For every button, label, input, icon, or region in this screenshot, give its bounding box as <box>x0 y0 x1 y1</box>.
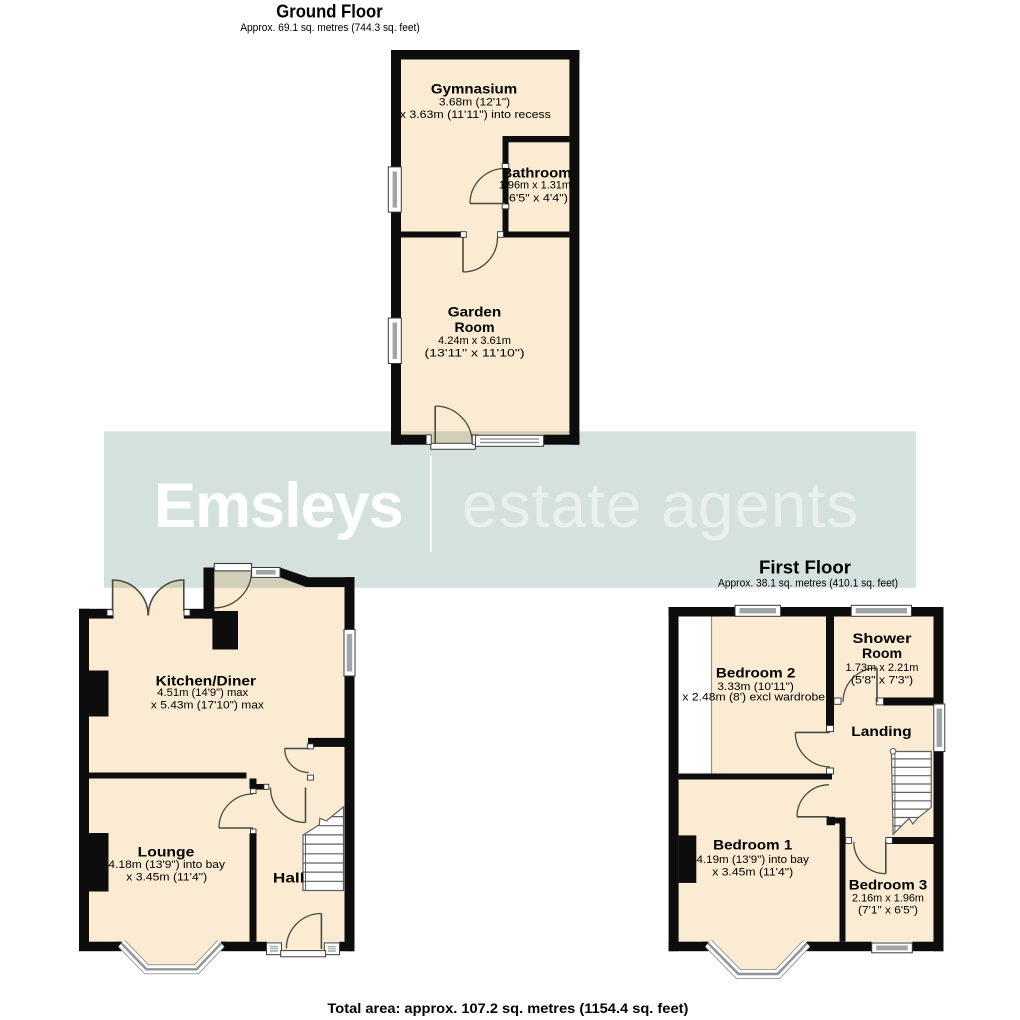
svg-text:x 3.63m (11'11") into recess: x 3.63m (11'11") into recess <box>400 109 552 121</box>
svg-text:4.19m (13'9") into bay: 4.19m (13'9") into bay <box>697 854 810 866</box>
svg-text:x 5.43m (17'10") max: x 5.43m (17'10") max <box>151 699 265 711</box>
svg-text:First Floor: First Floor <box>759 558 851 578</box>
svg-text:x 3.45m (11'4"): x 3.45m (11'4") <box>126 872 207 884</box>
svg-text:1.73m x 2.21m: 1.73m x 2.21m <box>846 662 919 674</box>
svg-text:x 3.45m (11'4"): x 3.45m (11'4") <box>712 866 793 878</box>
svg-text:(13'11" x 11'10"): (13'11" x 11'10") <box>425 348 525 360</box>
svg-text:Approx. 69.1 sq. metres (744.3: Approx. 69.1 sq. metres (744.3 sq. feet) <box>240 22 420 34</box>
svg-text:Shower: Shower <box>853 630 913 646</box>
svg-text:2.16m x 1.96m: 2.16m x 1.96m <box>852 893 924 905</box>
svg-text:Room: Room <box>455 319 495 335</box>
svg-text:estate agents: estate agents <box>462 469 859 541</box>
svg-text:Garden: Garden <box>448 304 502 320</box>
svg-text:4.18m (13'9") into bay: 4.18m (13'9") into bay <box>108 859 225 871</box>
svg-text:(5'8" x 7'3"): (5'8" x 7'3") <box>851 674 913 686</box>
svg-text:Kitchen/Diner: Kitchen/Diner <box>156 672 257 688</box>
svg-text:Ground Floor: Ground Floor <box>276 2 382 22</box>
svg-text:Bedroom 2: Bedroom 2 <box>716 665 796 681</box>
svg-text:4.24m x 3.61m: 4.24m x 3.61m <box>438 335 511 347</box>
svg-text:Emsleys: Emsleys <box>154 471 403 541</box>
svg-text:1.96m x 1.31m: 1.96m x 1.31m <box>499 180 571 192</box>
svg-text:(7'1" x 6'5"): (7'1" x 6'5") <box>858 904 918 916</box>
svg-text:Lounge: Lounge <box>138 844 195 860</box>
svg-text:Gymnasium: Gymnasium <box>431 81 517 97</box>
svg-text:(6'5" x 4'4"): (6'5" x 4'4") <box>505 193 568 205</box>
svg-text:Total area: approx. 107.2 sq.: Total area: approx. 107.2 sq. metres (11… <box>327 1000 688 1016</box>
svg-text:Bedroom 1: Bedroom 1 <box>713 837 792 853</box>
svg-text:Bathroom: Bathroom <box>502 164 572 180</box>
svg-text:Room: Room <box>862 645 902 661</box>
svg-text:4.51m (14'9") max: 4.51m (14'9") max <box>157 687 249 699</box>
svg-text:x 2.48m (8') excl wardrobe: x 2.48m (8') excl wardrobe <box>682 692 825 704</box>
svg-text:Bedroom 3: Bedroom 3 <box>849 877 928 893</box>
svg-text:3.68m (12'1"): 3.68m (12'1") <box>439 97 510 109</box>
svg-text:Approx. 38.1 sq. metres (410.1: Approx. 38.1 sq. metres (410.1 sq. feet) <box>718 577 898 589</box>
svg-text:Hall: Hall <box>273 869 305 885</box>
svg-text:Landing: Landing <box>851 723 911 739</box>
